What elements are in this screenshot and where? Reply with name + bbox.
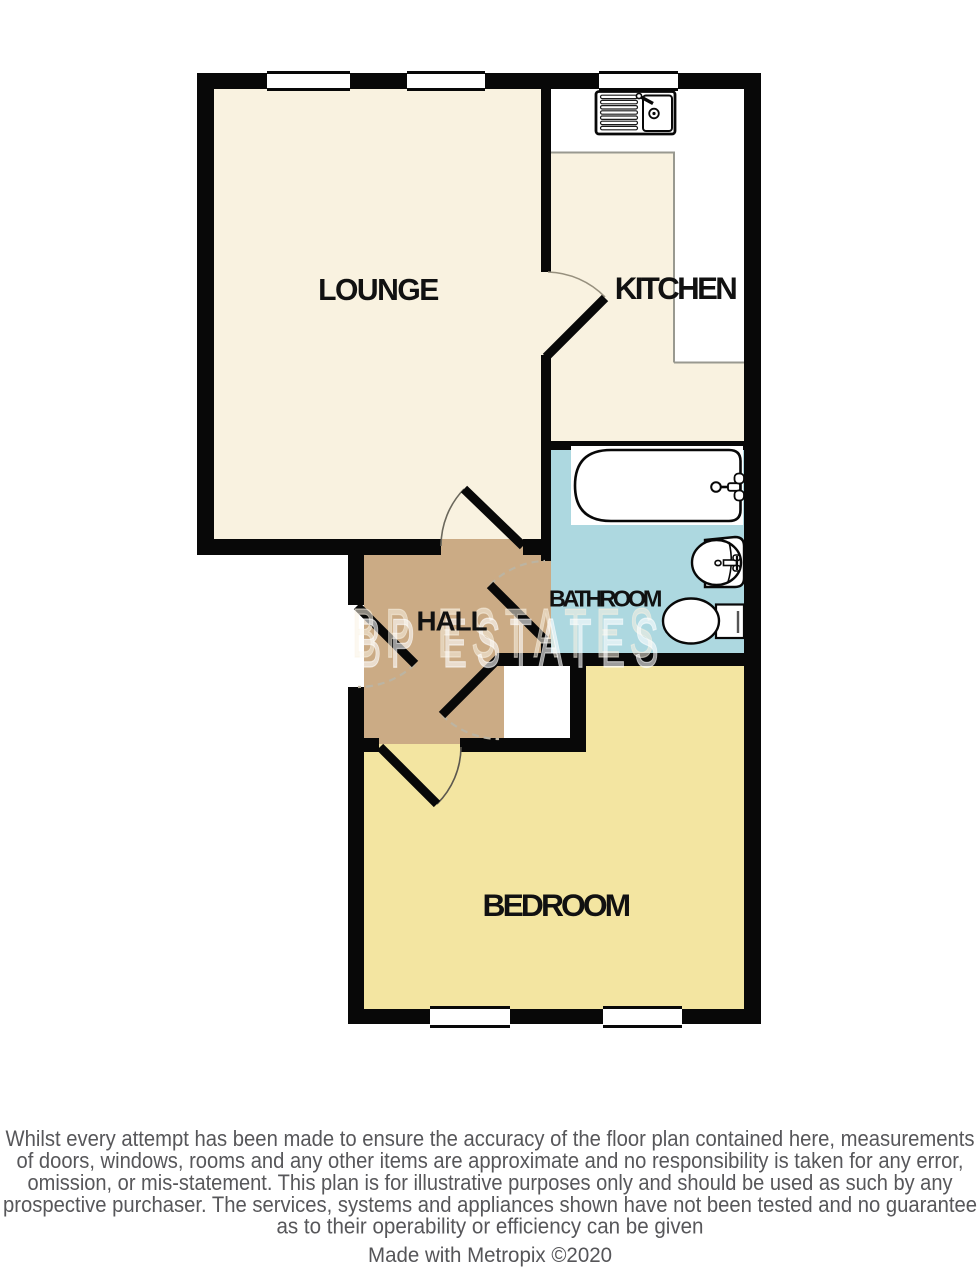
svg-text:BP ESTATES: BP ESTATES <box>357 604 668 682</box>
svg-text:BEDROOM: BEDROOM <box>483 887 630 923</box>
svg-text:as to their operability or eff: as to their operability or efficiency ca… <box>277 1214 704 1239</box>
svg-text:LOUNGE: LOUNGE <box>318 274 438 307</box>
svg-text:Made with Metropix ©2020: Made with Metropix ©2020 <box>368 1244 612 1267</box>
svg-text:BATHROOM: BATHROOM <box>549 586 661 612</box>
svg-text:KITCHEN: KITCHEN <box>615 271 736 306</box>
svg-text:HALL: HALL <box>416 606 487 637</box>
